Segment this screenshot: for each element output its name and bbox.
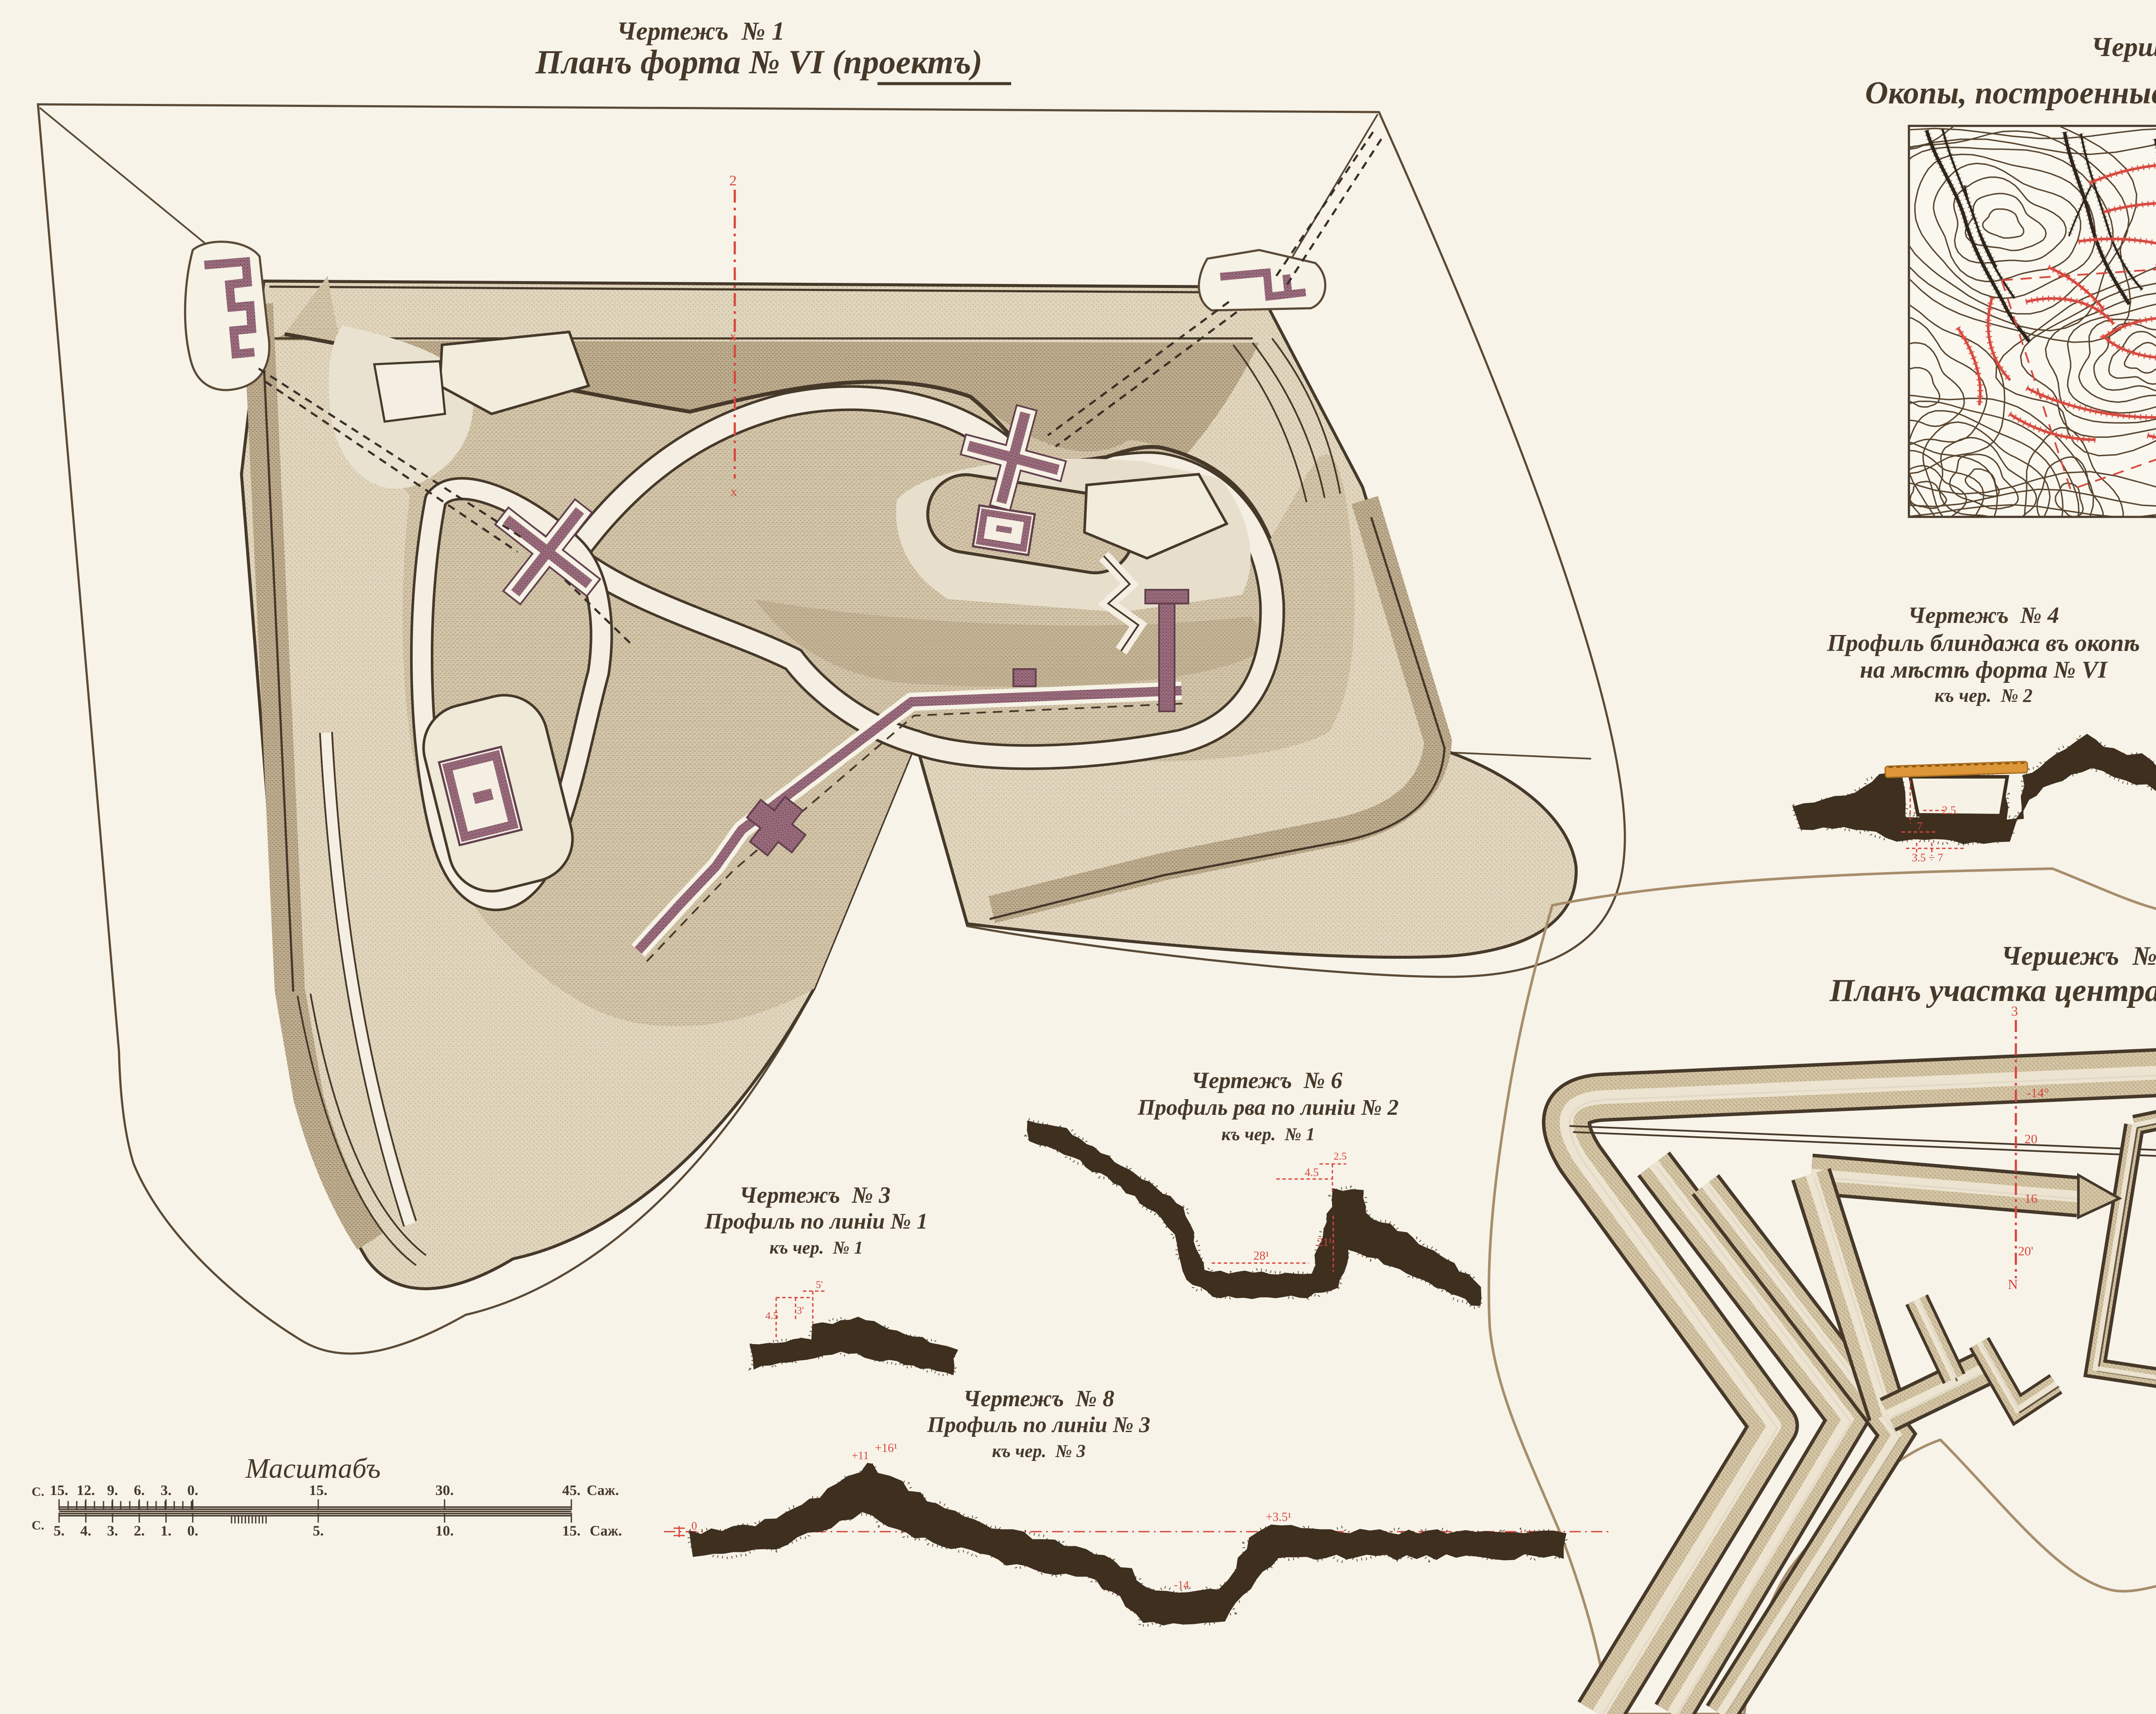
svg-text:0: 0 xyxy=(692,1520,697,1532)
svg-text:+16¹: +16¹ xyxy=(875,1442,897,1455)
svg-text:12.: 12. xyxy=(77,1483,95,1498)
svg-text:15.: 15. xyxy=(50,1483,69,1498)
svg-text:0.: 0. xyxy=(187,1483,198,1498)
svg-text:4.5: 4.5 xyxy=(765,1311,778,1322)
svg-text:1.: 1. xyxy=(160,1523,172,1539)
svg-text:2.: 2. xyxy=(134,1523,145,1539)
svg-text:7: 7 xyxy=(1917,820,1923,832)
svg-text:16: 16 xyxy=(2024,1192,2037,1206)
svg-text:5.: 5. xyxy=(53,1523,65,1539)
svg-text:Профиль по линіи № 1: Профиль по линіи № 1 xyxy=(704,1209,928,1234)
svg-text:4.5: 4.5 xyxy=(1305,1166,1319,1179)
svg-text:5.: 5. xyxy=(313,1523,324,1539)
svg-text:45.: 45. xyxy=(562,1483,581,1498)
svg-text:Планъ форта № VI (проектъ): Планъ форта № VI (проектъ) xyxy=(535,43,983,81)
svg-text:0.: 0. xyxy=(187,1523,198,1539)
svg-text:С.: С. xyxy=(31,1485,44,1499)
svg-text:Профиль по линіи № 3: Профиль по линіи № 3 xyxy=(927,1413,1150,1437)
svg-text:4.: 4. xyxy=(80,1523,91,1539)
svg-text:28¹: 28¹ xyxy=(1253,1249,1269,1263)
svg-text:+11: +11 xyxy=(852,1449,869,1462)
svg-text:Чертежъ № 4: Чертежъ № 4 xyxy=(1908,602,2059,628)
svg-text:6.: 6. xyxy=(134,1483,145,1498)
svg-text:къ чер. № 3: къ чер. № 3 xyxy=(992,1442,1085,1461)
svg-text:Окопы, построенные на мѣстѣ фо: Окопы, построенные на мѣстѣ форта № VI xyxy=(1865,75,2156,111)
svg-text:х: х xyxy=(730,329,736,344)
svg-text:3.5 ÷ 7: 3.5 ÷ 7 xyxy=(1912,851,1943,864)
svg-text:20: 20 xyxy=(2024,1132,2037,1146)
svg-text:3': 3' xyxy=(797,1305,804,1317)
svg-text:Чертежъ № 8: Чертежъ № 8 xyxy=(963,1386,1115,1411)
svg-text:Профиль рва по линіи № 2: Профиль рва по линіи № 2 xyxy=(1137,1095,1398,1120)
svg-text:къ чер. № 1: къ чер. № 1 xyxy=(769,1238,863,1258)
svg-text:5': 5' xyxy=(816,1279,823,1291)
svg-text:2: 2 xyxy=(730,173,737,189)
svg-text:20': 20' xyxy=(2018,1244,2033,1258)
svg-text:къ чер. № 1: къ чер. № 1 xyxy=(1221,1125,1315,1145)
svg-text:21¹: 21¹ xyxy=(1317,1236,1332,1248)
svg-text:+3.5¹: +3.5¹ xyxy=(1266,1511,1291,1524)
svg-text:30.: 30. xyxy=(436,1483,454,1498)
svg-text:С.: С. xyxy=(31,1518,44,1533)
svg-text:3.: 3. xyxy=(107,1523,118,1539)
svg-text:Профиль блиндажа въ окопѣ: Профиль блиндажа въ окопѣ xyxy=(1827,630,2140,657)
svg-text:Планъ участка центральной огра: Планъ участка центральной ограды xyxy=(1829,973,2156,1008)
svg-text:N: N xyxy=(2008,1276,2018,1292)
svg-text:Масштабъ: Масштабъ xyxy=(245,1453,380,1484)
svg-text:Чершежъ № 2: Чершежъ № 2 xyxy=(2091,31,2156,62)
svg-text:15.: 15. xyxy=(309,1483,328,1498)
svg-text:3.: 3. xyxy=(160,1483,172,1498)
svg-text:Саж.: Саж. xyxy=(590,1523,622,1539)
svg-text:Чертежъ № 3: Чертежъ № 3 xyxy=(740,1182,891,1208)
svg-text:х: х xyxy=(731,485,737,499)
svg-text:15.: 15. xyxy=(562,1523,581,1539)
svg-text:Саж.: Саж. xyxy=(587,1483,619,1498)
svg-text:2.5: 2.5 xyxy=(1942,804,1956,816)
svg-text:2.5: 2.5 xyxy=(1334,1151,1347,1162)
svg-text:10.: 10. xyxy=(436,1523,454,1539)
svg-text:Чершежъ № 3: Чершежъ № 3 xyxy=(2001,941,2156,971)
svg-text:Чертежъ № 1: Чертежъ № 1 xyxy=(617,17,785,45)
svg-text:3: 3 xyxy=(2011,1003,2018,1019)
svg-text:-14: -14 xyxy=(1174,1579,1189,1591)
svg-text:-14°: -14° xyxy=(2027,1086,2049,1100)
svg-text:Чертежъ № 6: Чертежъ № 6 xyxy=(1191,1067,1343,1093)
svg-text:9.: 9. xyxy=(107,1483,118,1498)
svg-text:на мѣстѣ форта № VI: на мѣстѣ форта № VI xyxy=(1860,657,2108,683)
svg-text:къ чер. № 2: къ чер. № 2 xyxy=(1934,685,2032,706)
